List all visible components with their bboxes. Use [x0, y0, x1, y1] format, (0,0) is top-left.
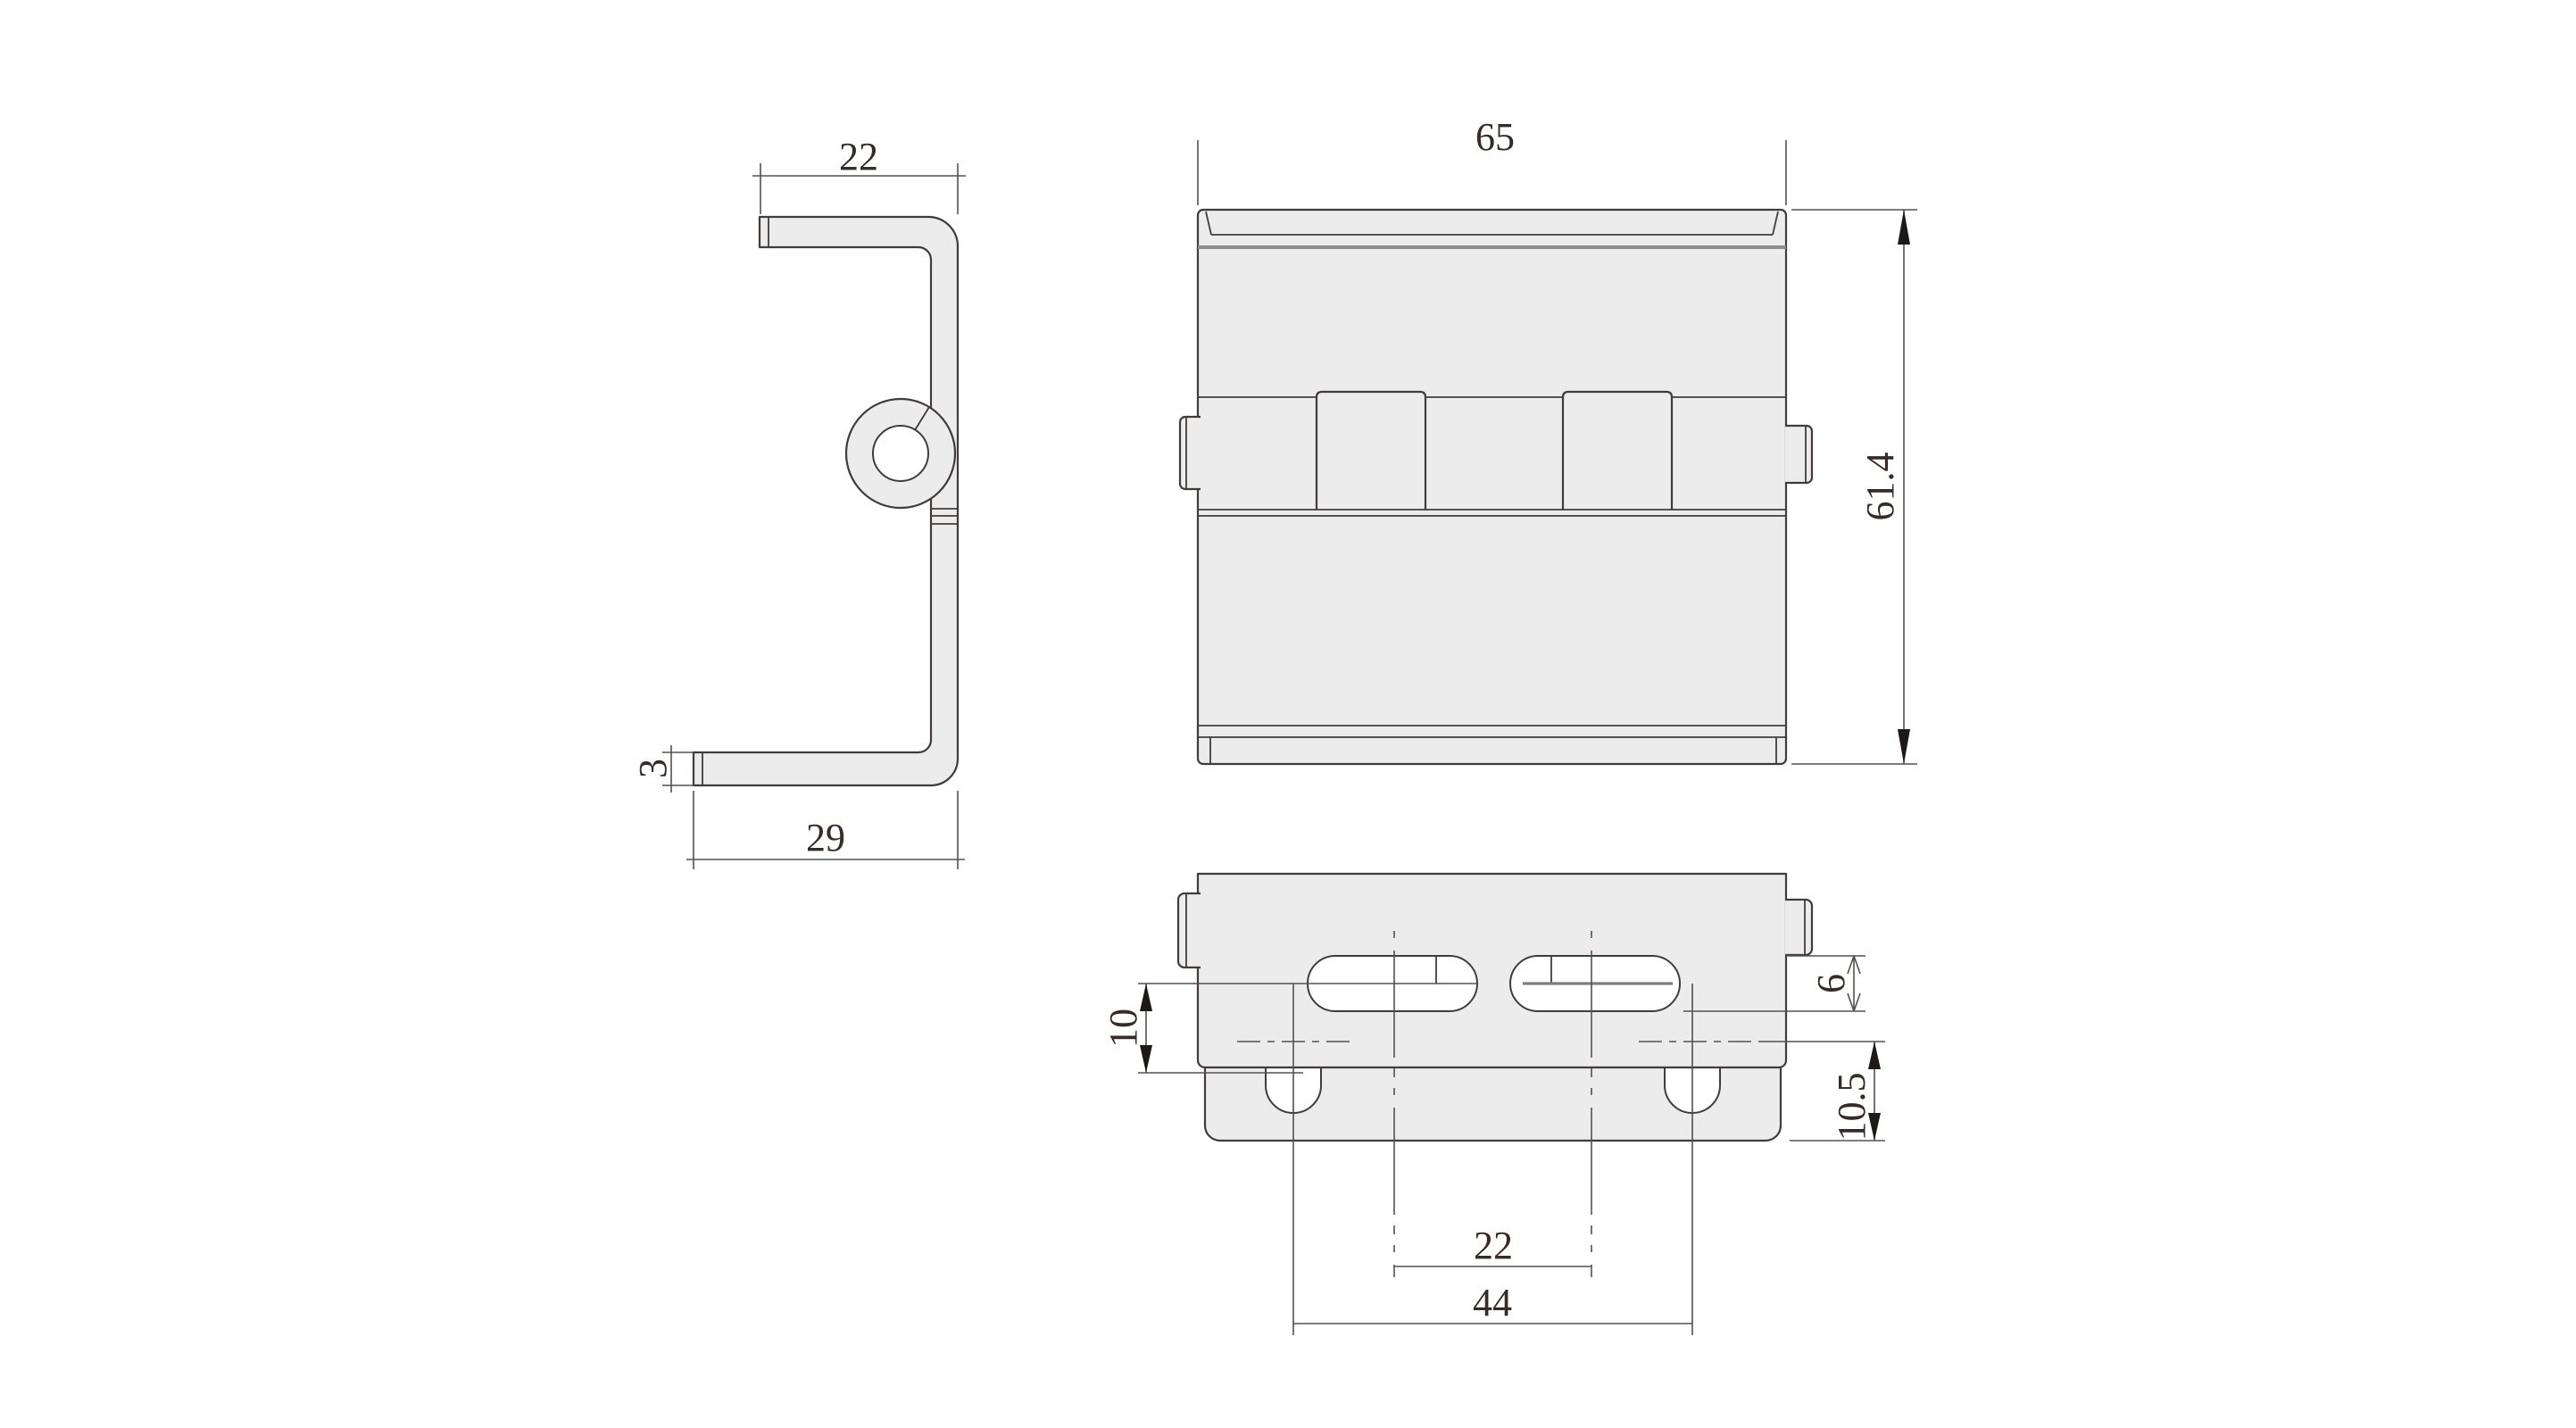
knuckle-tab-left [1317, 392, 1425, 510]
pin-hole [873, 426, 928, 481]
front-body [1198, 210, 1786, 764]
pin-stub-right [1785, 426, 1812, 483]
dim-side-base-width: 29 [686, 791, 965, 869]
dim-side-flange-width: 22 [752, 135, 966, 214]
hinge-drawing: 22 3 29 [0, 0, 2576, 1428]
dim-front-height: 61.4 [1791, 210, 1917, 764]
dim-front-width: 65 [1198, 115, 1786, 205]
bottom-leaf [1198, 874, 1786, 1067]
dim-label-axis-to-edge: 10.5 [1830, 1073, 1874, 1142]
dim-label-front-width: 65 [1475, 115, 1515, 159]
dim-label-side-flange-width: 22 [839, 135, 878, 178]
side-view: 22 3 29 [631, 135, 966, 869]
dim-label-front-height: 61.4 [1858, 452, 1902, 521]
dim-label-side-thickness: 3 [631, 759, 675, 778]
pin-stub-left [1180, 417, 1201, 489]
dim-label-slot-width: 6 [1809, 974, 1853, 993]
pin-stub-left [1178, 893, 1201, 967]
pin-stub-right [1785, 900, 1812, 955]
knuckle-tab-right [1563, 392, 1672, 510]
dim-label-notch-spacing: 44 [1473, 1281, 1512, 1324]
dim-side-thickness: 3 [631, 745, 693, 793]
dim-label-slot-center-offset: 10 [1101, 1009, 1145, 1048]
drawing-canvas: 22 3 29 [0, 0, 2576, 1428]
dim-slot-spacing: 22 [1394, 1224, 1591, 1267]
dim-notch-spacing: 44 [1293, 1281, 1692, 1324]
bottom-view: 10 6 10.5 22 44 [1101, 874, 1885, 1335]
dim-label-slot-spacing: 22 [1474, 1224, 1513, 1267]
dim-label-side-base-width: 29 [806, 816, 845, 859]
front-view: 65 61.4 [1180, 115, 1917, 764]
